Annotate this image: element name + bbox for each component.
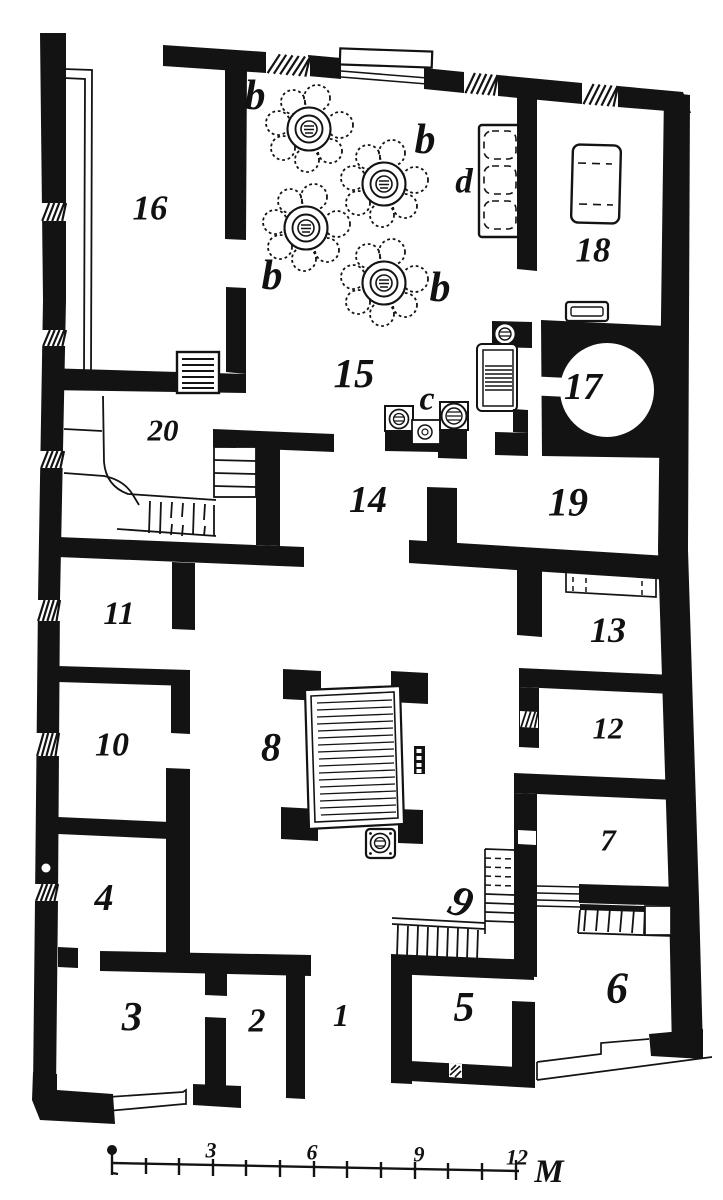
svg-text:M: M — [533, 1154, 565, 1190]
svg-text:13: 13 — [590, 610, 626, 650]
svg-text:b: b — [245, 73, 266, 119]
svg-text:7: 7 — [600, 823, 617, 858]
svg-text:c: c — [419, 381, 434, 418]
svg-text:8: 8 — [261, 725, 281, 770]
svg-text:16: 16 — [133, 189, 169, 228]
svg-text:d: d — [455, 162, 473, 201]
svg-text:15: 15 — [334, 350, 375, 396]
svg-text:4: 4 — [94, 877, 114, 919]
svg-text:b: b — [415, 117, 436, 163]
svg-text:17: 17 — [564, 366, 604, 408]
svg-text:19: 19 — [548, 480, 588, 525]
svg-text:12: 12 — [593, 711, 624, 746]
svg-text:2: 2 — [248, 1003, 266, 1040]
svg-text:3: 3 — [205, 1138, 217, 1163]
svg-text:1: 1 — [333, 997, 349, 1033]
svg-text:3: 3 — [121, 993, 143, 1039]
svg-text:11: 11 — [103, 596, 134, 632]
svg-text:9: 9 — [414, 1142, 425, 1167]
svg-text:b: b — [430, 265, 451, 311]
svg-text:12: 12 — [506, 1145, 528, 1170]
svg-text:6: 6 — [307, 1140, 318, 1165]
svg-text:b: b — [262, 253, 283, 299]
svg-text:6: 6 — [606, 964, 628, 1013]
svg-text:20: 20 — [147, 413, 179, 448]
svg-text:14: 14 — [349, 479, 387, 521]
svg-text:5: 5 — [454, 985, 475, 1031]
svg-text:10: 10 — [95, 727, 129, 764]
svg-text:18: 18 — [576, 231, 611, 270]
